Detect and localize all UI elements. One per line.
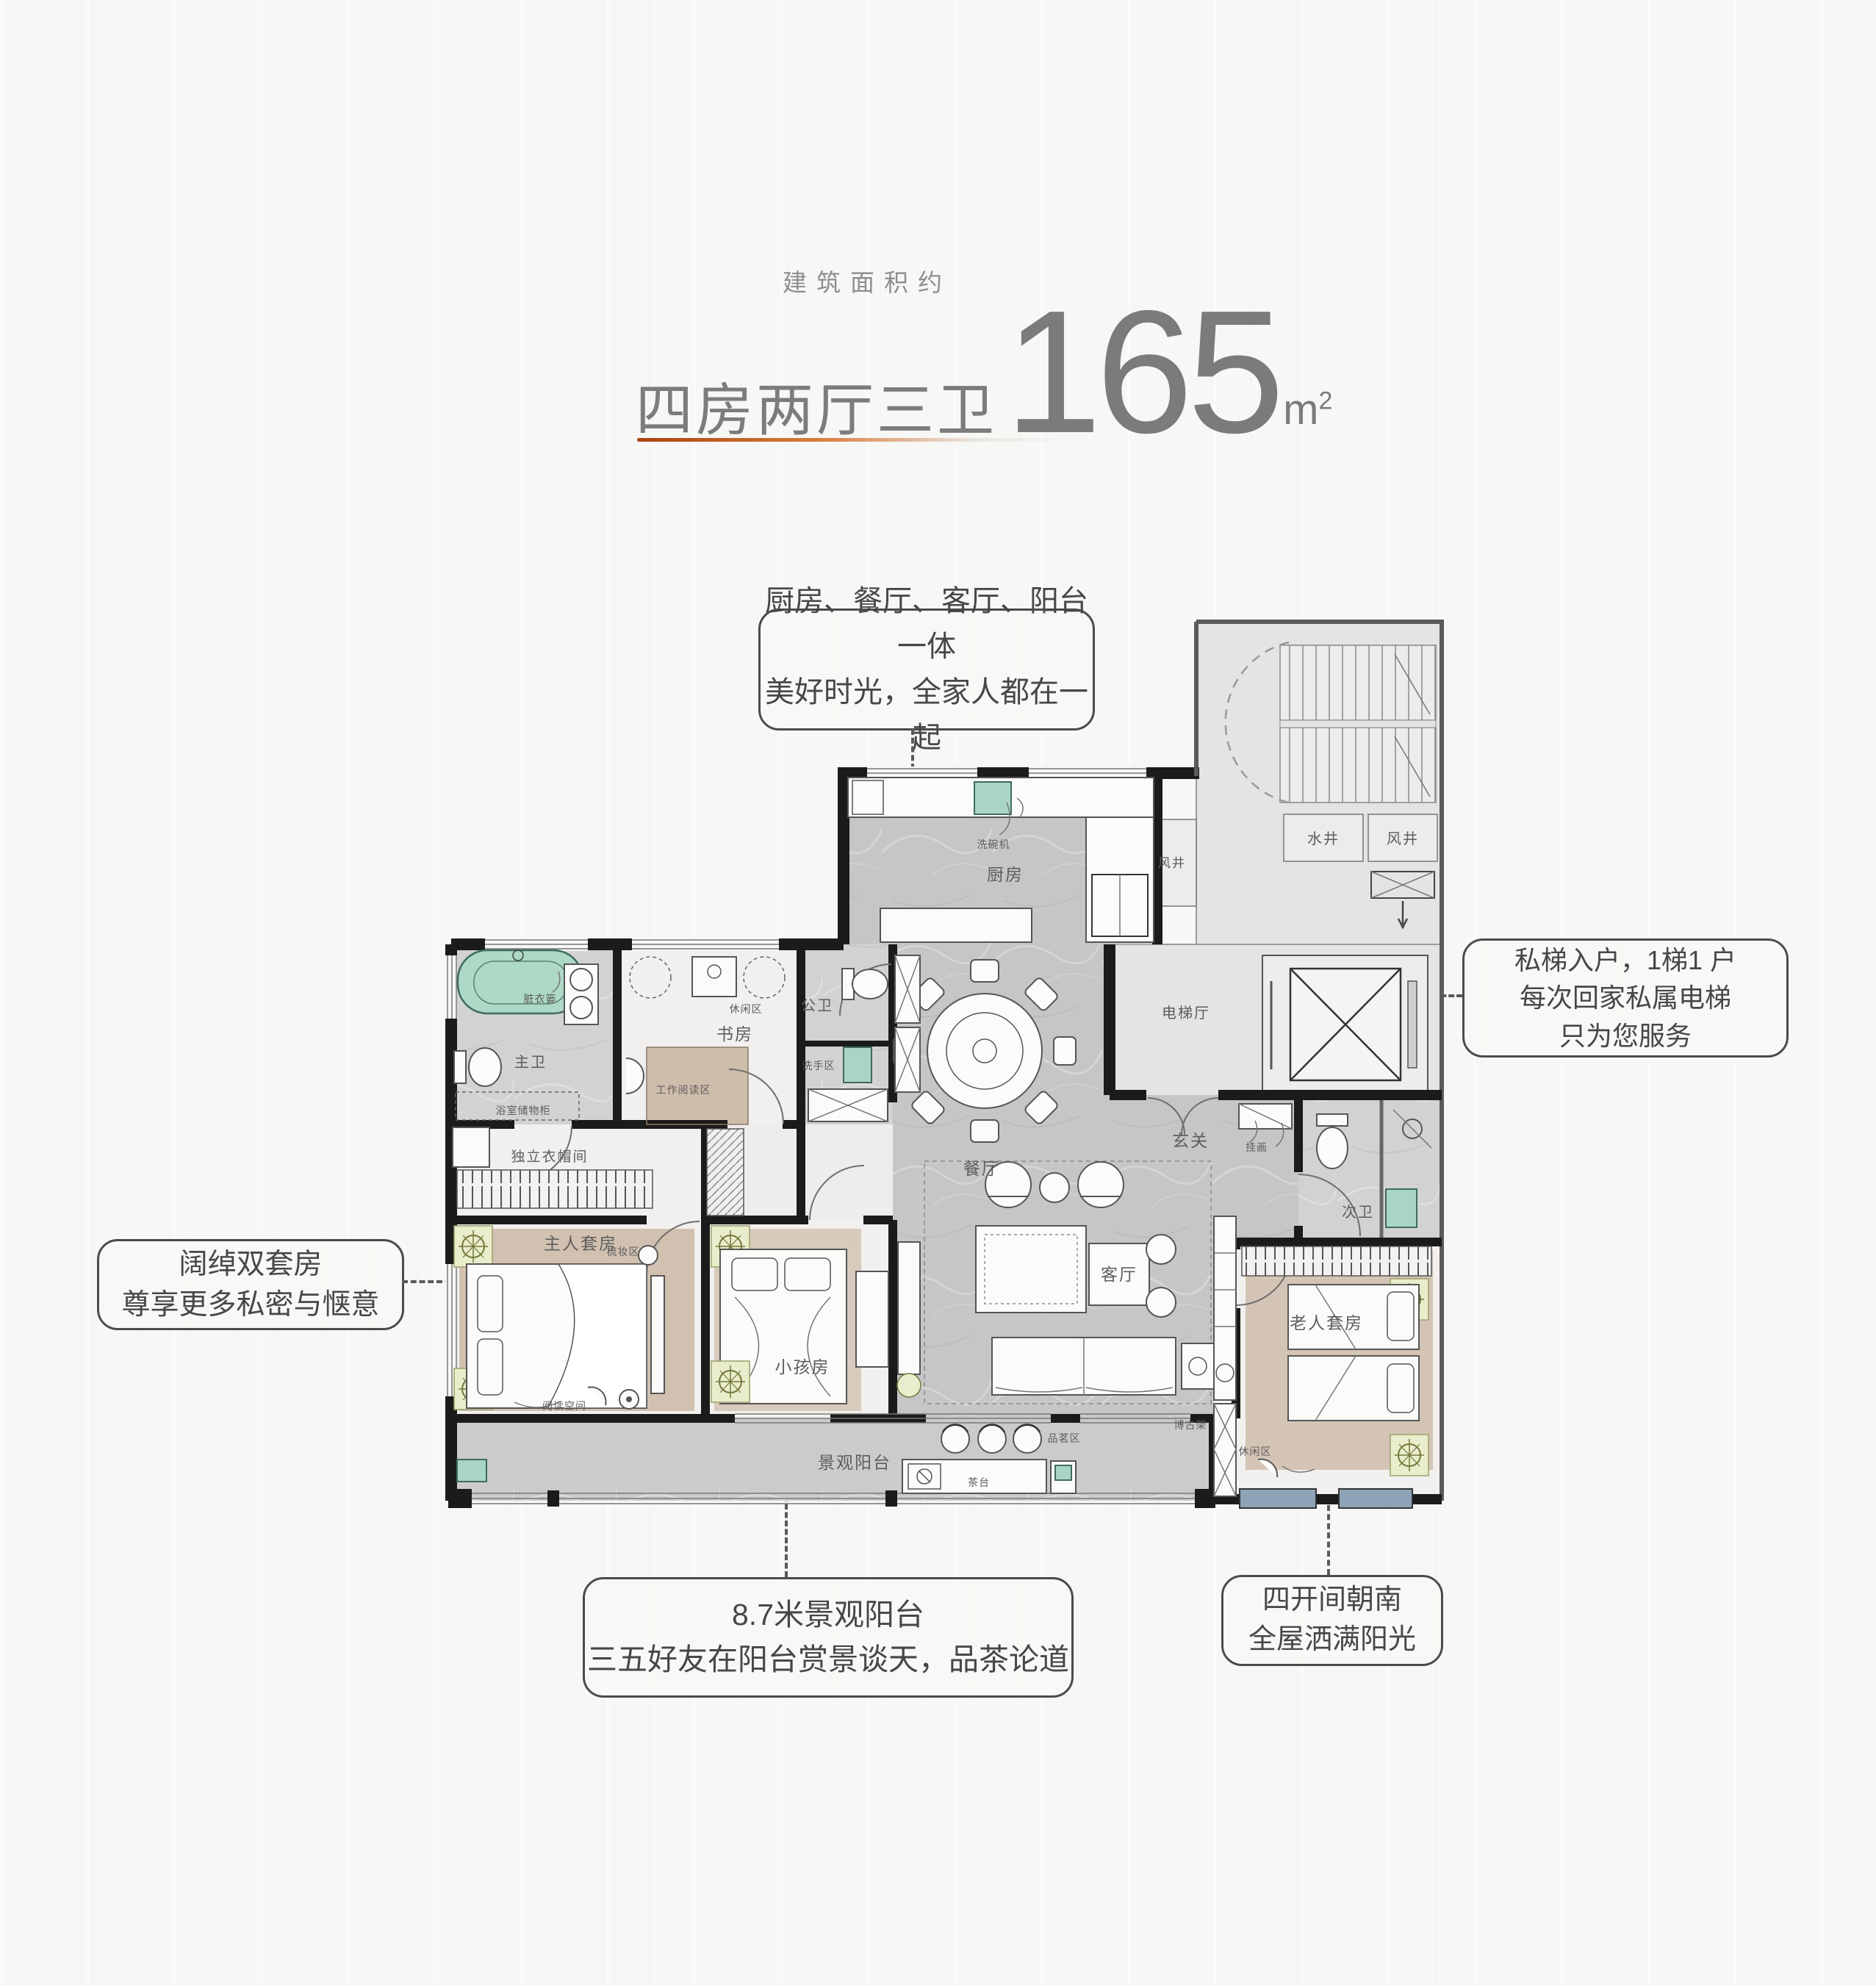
room-label-study: 书房 [716,1024,753,1044]
bed-bench [651,1276,664,1393]
callout-balcony: 8.7米景观阳台 三五好友在阳台赏景谈天，品茶论道 [583,1577,1074,1698]
label-tea-area: 品茗区 [1048,1432,1081,1444]
label-laundry-basket: 脏衣篓 [524,993,557,1005]
callout-bright-line2: 全屋洒满阳光 [1223,1620,1441,1660]
public-toilet [852,969,888,999]
unit-m: m [1283,386,1318,434]
label-leisure-study: 休闲区 [730,1003,763,1015]
callout-left-line2: 尊享更多私密与惬意 [99,1285,402,1325]
callout-right-line3: 只为您服务 [1464,1017,1786,1055]
room-label-kids: 小孩房 [775,1357,830,1376]
east-cabinet [1214,1216,1236,1400]
room-label-balcony: 景观阳台 [818,1453,891,1472]
room-label-closet: 独立衣帽间 [511,1149,588,1165]
room-label-dining: 餐厅 [963,1159,1000,1178]
master-toilet [469,1048,501,1086]
elder-window-1 [1240,1489,1316,1508]
layout-title: 四房两厅三卫 [636,381,997,453]
callout-right-line2: 每次回家私属电梯 [1464,979,1786,1016]
label-display-shelf: 博古架 [1174,1419,1207,1431]
wash-sink [844,1047,871,1083]
elder-wardrobe [1242,1246,1431,1276]
room-label-elder: 老人套房 [1290,1313,1363,1332]
elevator [1262,955,1428,1095]
elder-window-2 [1339,1489,1412,1508]
armchair-2 [1078,1162,1124,1207]
callout-bcenter-line1: 8.7米景观阳台 [585,1593,1071,1638]
callout-double-suite: 阔绰双套房 尊享更多私密与惬意 [97,1239,404,1330]
label-work-reading: 工作阅读区 [656,1084,711,1096]
tv-cabinet [898,1242,920,1374]
room-label-foyer: 玄关 [1172,1131,1209,1150]
dressing-stool [639,1246,658,1265]
callout-bcenter-line2: 三五好友在阳台赏景谈天，品茶论道 [585,1637,1071,1683]
hall-wardrobe [707,1129,744,1216]
closet-rail [457,1170,653,1208]
label-dressing: 梳妆区 [607,1246,640,1257]
elder-bed-2 [1288,1356,1419,1421]
header-row: 四房两厅三卫 165 m2 [636,292,1332,453]
accent-underline [637,438,1068,442]
label-bath-cabinet: 浴室储物柜 [496,1105,551,1116]
room-label-kitchen: 厨房 [987,865,1024,884]
second-toilet [1317,1127,1348,1169]
callout-private-elevator: 私梯入户，1梯1 户 每次回家私属电梯 只为您服务 [1462,938,1789,1058]
floor-plan: 厨房 餐厅 客厅 玄关 书房 主人套房 小孩房 老人套房 主卫 公卫 次卫 独立… [441,617,1448,1543]
unit-sup: 2 [1318,387,1332,415]
header: 建筑面积约 四房两厅三卫 165 m2 [636,248,1356,454]
callout-left-line1: 阔绰双套房 [99,1244,402,1285]
room-label-public-bath: 公卫 [801,998,833,1014]
second-bath-sink [1386,1189,1417,1227]
room-label-living: 客厅 [1101,1265,1138,1284]
room-label-elevator-hall: 电梯厅 [1162,1005,1210,1022]
callout-right-line1: 私梯入户，1梯1 户 [1464,941,1786,979]
sofa-main [976,1226,1086,1313]
label-wash-area: 洗手区 [802,1060,835,1072]
label-water-shaft: 水井 [1307,830,1340,847]
label-dishwasher: 洗碗机 [977,839,1010,850]
area-number: 165 [1005,292,1279,453]
label-reading-space: 阅读空间 [542,1400,586,1412]
room-label-master-bath: 主卫 [514,1054,547,1071]
kitchen-sink [974,782,1011,814]
label-tea-table: 茶台 [968,1476,990,1488]
callout-bright-line1: 四开间朝南 [1223,1581,1441,1620]
kitchen-island [880,908,1032,942]
balcony-planter [457,1460,486,1482]
kids-desk [856,1271,888,1367]
area-unit: m2 [1283,385,1332,453]
callout-south-facing: 四开间朝南 全屋洒满阳光 [1221,1575,1443,1666]
room-label-second-bath: 次卫 [1342,1204,1374,1221]
label-wind-shaft-a: 风井 [1158,856,1186,870]
label-leisure-elder: 休闲区 [1239,1446,1272,1457]
floorplan-page: 建筑面积约 四房两厅三卫 165 m2 厨房、餐厅、客厅、阳台一体 美好时光，全… [0,0,1876,1985]
display-shelf-unit [1214,1404,1236,1496]
label-hanging-art: 挂画 [1246,1141,1268,1153]
label-wind-shaft-b: 风井 [1387,830,1419,847]
